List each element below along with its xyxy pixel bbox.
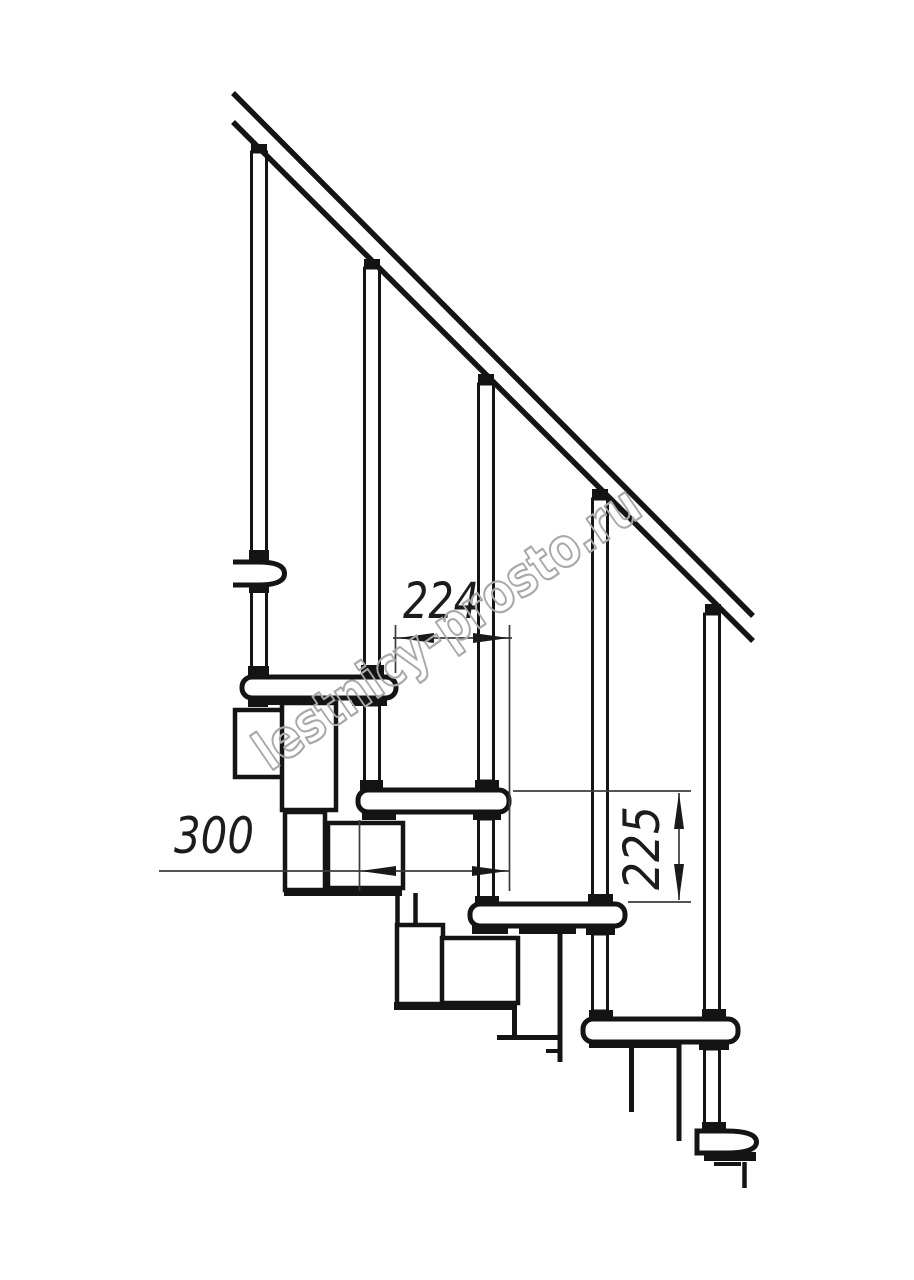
module-box-5	[442, 938, 518, 1003]
watermark-text: lestnicy-prosto.ru	[242, 473, 653, 783]
tread-3	[470, 904, 625, 926]
baluster-1-lower-segment	[252, 591, 267, 671]
module-box-2	[285, 812, 325, 890]
bracket-connector	[249, 550, 269, 560]
tread-2	[358, 790, 509, 812]
baluster-3-lower-segment	[479, 819, 494, 899]
arrowhead-up	[674, 793, 684, 829]
baluster-5-lower-segment	[705, 1049, 720, 1125]
module-box-4	[397, 925, 443, 1004]
tread-4	[583, 1019, 738, 1042]
arrowhead-down	[674, 864, 684, 900]
top-wall-bracket	[233, 562, 285, 585]
dimension-label-300: 300	[174, 807, 254, 865]
module-box-3	[328, 823, 403, 888]
baluster-4-lower-segment	[593, 934, 608, 1011]
bottom-floor-bracket	[697, 1131, 757, 1153]
staircase-technical-drawing: 224 300 225 lestnicy-prosto.ru	[0, 0, 914, 1280]
dimension-label-225: 225	[613, 806, 671, 890]
